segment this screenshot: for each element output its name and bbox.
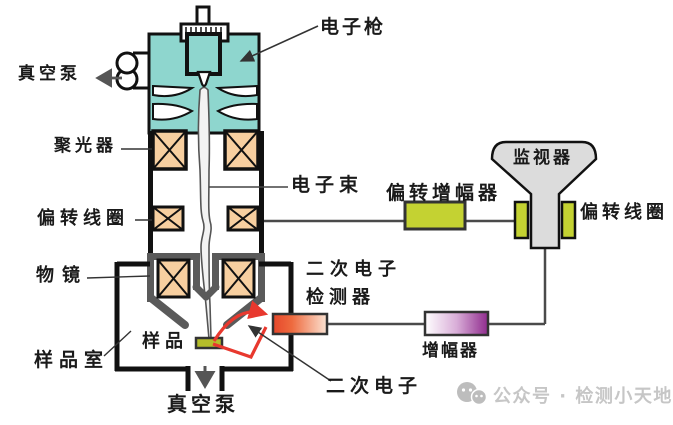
objective-lens-label: 物镜 [36, 266, 88, 286]
vacuum-pump-top-label: 真空泵 [18, 65, 81, 84]
secondary-electron-detector-box [273, 314, 327, 334]
wechat-icon [457, 382, 487, 405]
vacuum-pipe [117, 53, 152, 89]
watermark-text: 公众号 · 检测小天地 [493, 382, 673, 408]
electron-beam-shape [199, 88, 212, 340]
objective-pointer [87, 276, 150, 278]
secondary-electron-detector-label-line1: 二次电子 [306, 260, 402, 280]
vacuum-pump-bottom-label: 真空泵 [167, 393, 239, 415]
sample-chamber-label: 样品室 [34, 350, 109, 371]
condenser-label: 聚光器 [54, 137, 117, 156]
amplifier-label: 增幅器 [422, 342, 479, 361]
electron-beam-label: 电子束 [291, 175, 363, 196]
monitor-label: 监视器 [513, 149, 573, 168]
secondary-electron-detector-label-line2: 检测器 [306, 288, 375, 308]
electron-gun-label: 电子枪 [320, 17, 386, 38]
secondary-electrons-label: 二次电子 [326, 376, 422, 397]
deflection-coil-right-label: 偏转线圈 [580, 203, 668, 223]
amplifier-box [425, 312, 488, 335]
electron-column [117, 7, 265, 339]
deflection-amplifier-label: 偏转增幅器 [386, 183, 501, 204]
cathode-assembly [181, 7, 228, 86]
deflection-amplifier-box [405, 202, 465, 229]
sem-schematic-diagram: 真空泵 聚光器 偏转线圈 物镜 样品室 样品 真空泵 电子枪 电子束 偏转增幅器… [0, 0, 673, 425]
sample-label: 样品 [142, 332, 188, 352]
deflection-coil-left-label: 偏转线圈 [37, 209, 129, 229]
